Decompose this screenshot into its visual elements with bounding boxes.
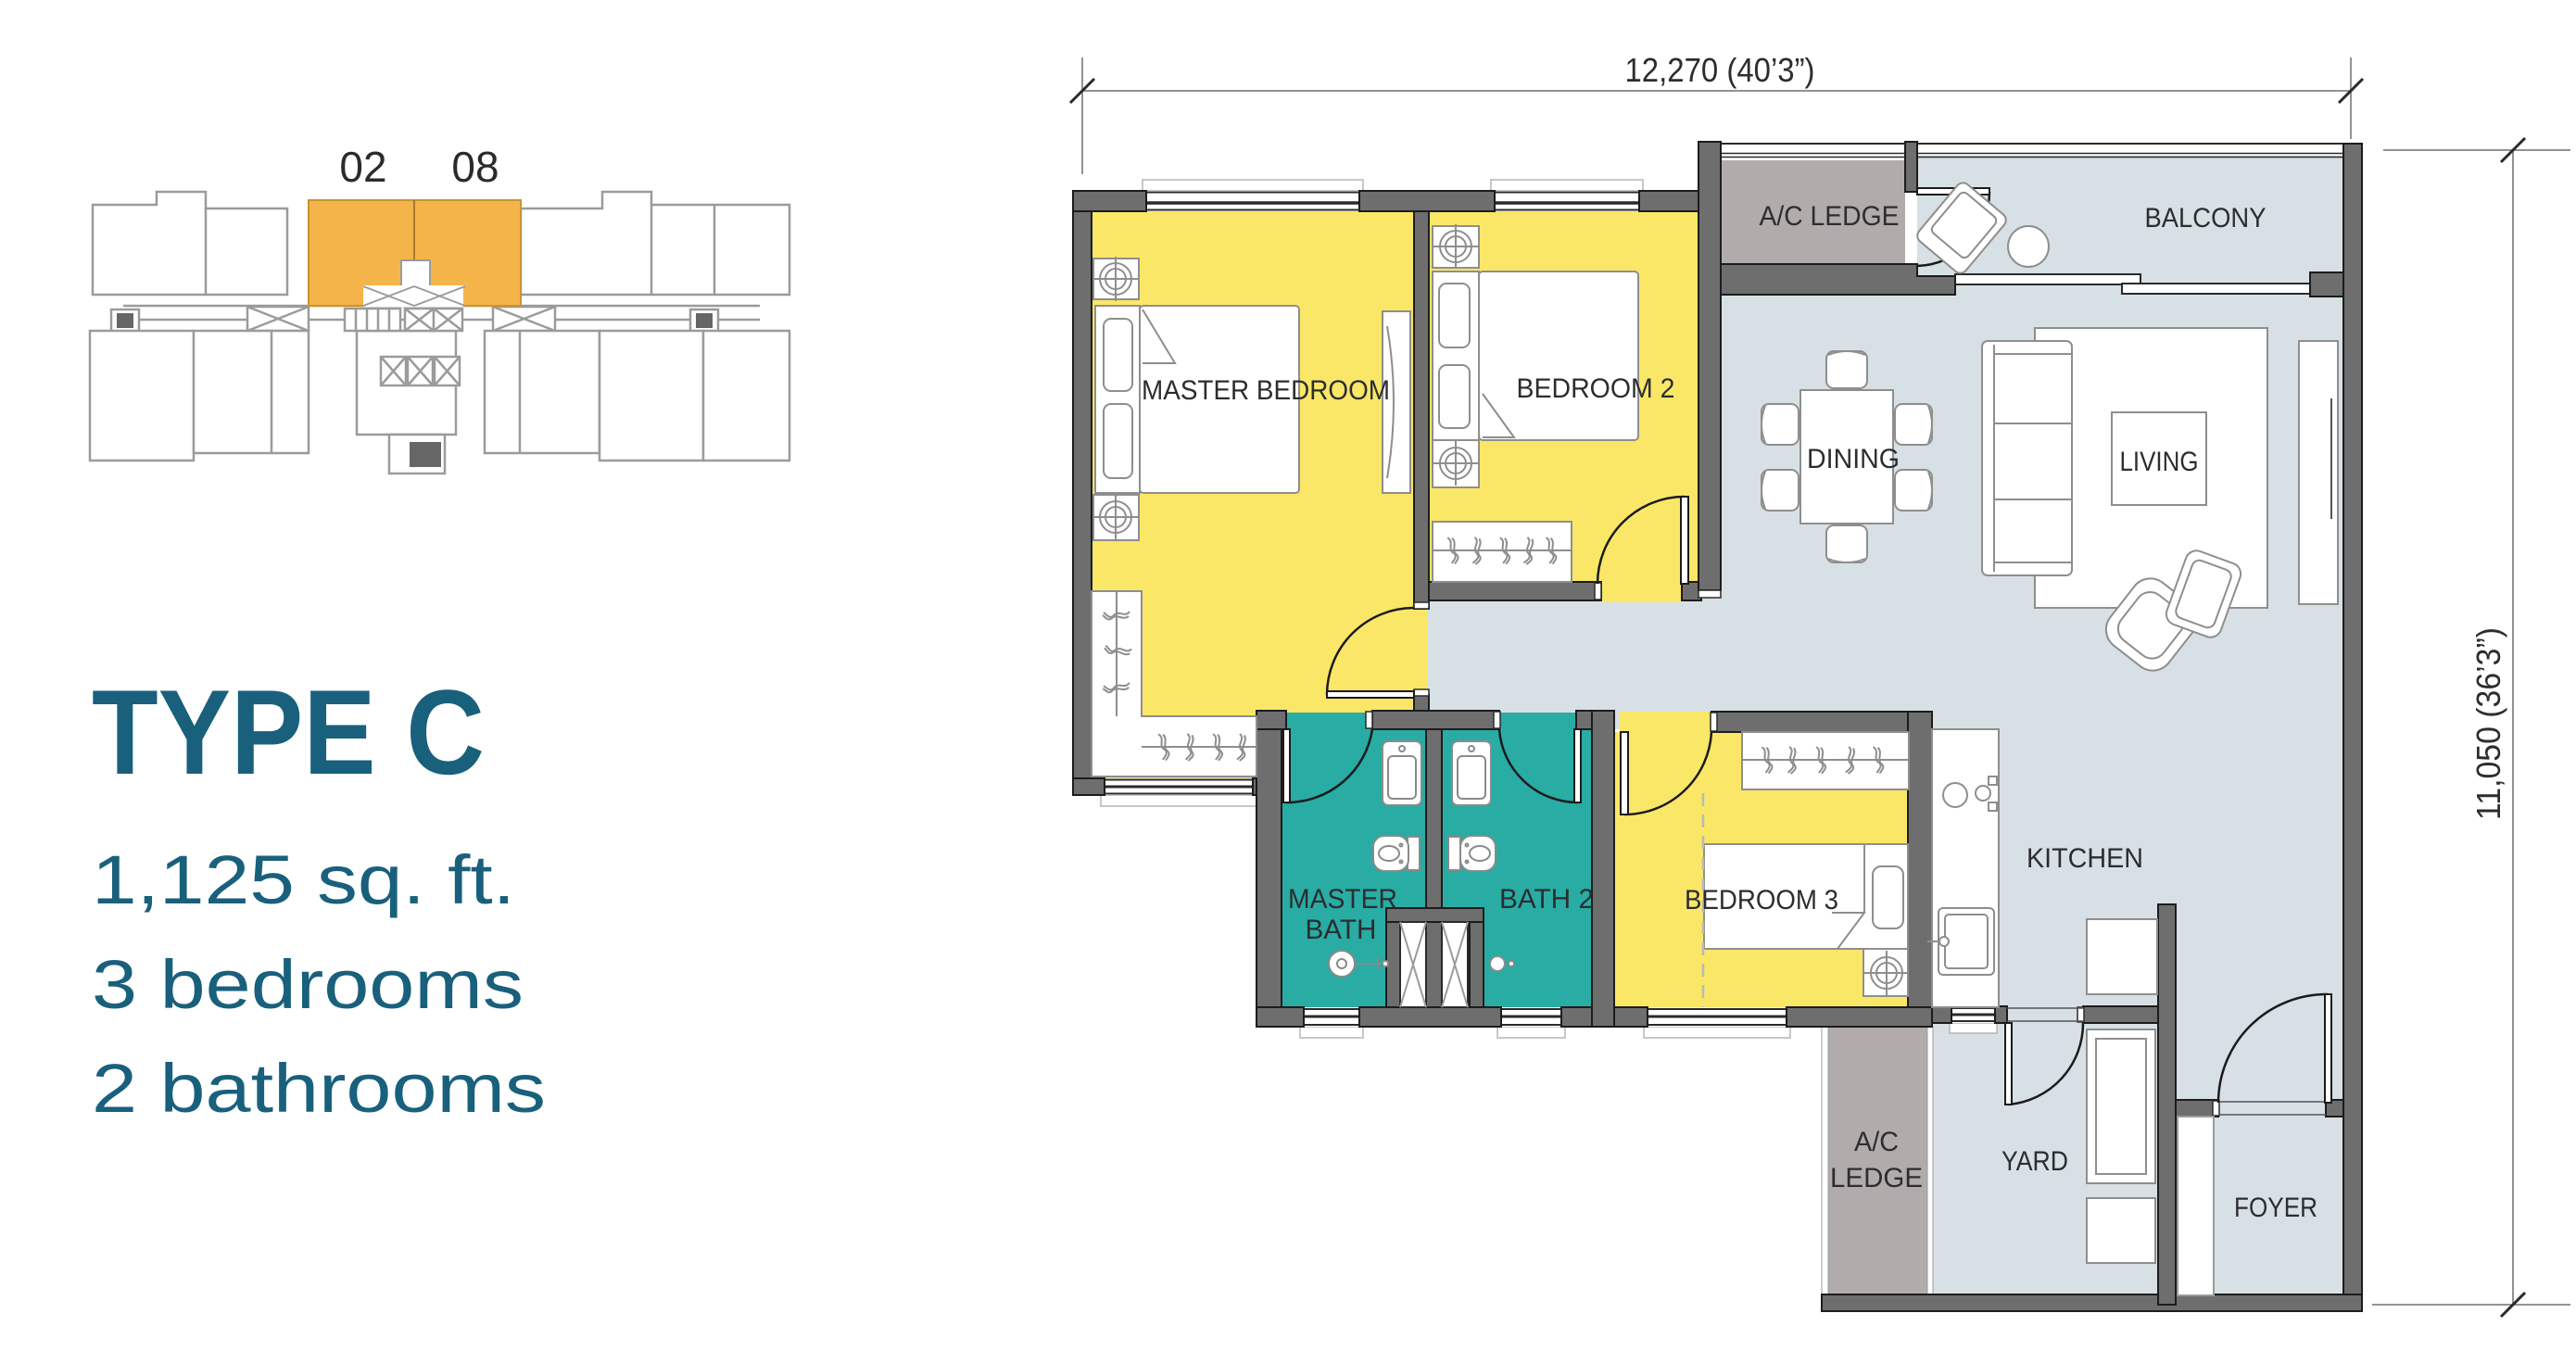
svg-text:FOYER: FOYER [2234,1193,2317,1223]
svg-text:DINING: DINING [1807,444,1900,474]
svg-text:12,270 (40’3”): 12,270 (40’3”) [1625,51,1815,89]
svg-text:2 bathrooms: 2 bathrooms [92,1050,546,1127]
svg-text:A/C: A/C [1854,1127,1899,1157]
svg-text:08: 08 [451,143,499,191]
svg-text:A/C LEDGE: A/C LEDGE [1760,201,1900,232]
svg-text:BATH 2: BATH 2 [1499,884,1594,915]
svg-text:BEDROOM 3: BEDROOM 3 [1685,885,1838,915]
svg-text:KITCHEN: KITCHEN [2027,843,2143,874]
svg-text:LEDGE: LEDGE [1830,1163,1923,1193]
svg-text:TYPE C: TYPE C [92,664,485,800]
svg-text:11,050 (36’3”): 11,050 (36’3”) [2469,627,2507,820]
svg-text:MASTER BEDROOM: MASTER BEDROOM [1142,375,1390,406]
svg-text:MASTER: MASTER [1288,884,1397,915]
svg-text:LIVING: LIVING [2120,447,2199,477]
svg-text:02: 02 [339,143,386,191]
svg-text:3 bedrooms: 3 bedrooms [92,946,524,1023]
svg-text:YARD: YARD [2001,1146,2068,1177]
svg-text:BATH: BATH [1306,915,1377,945]
svg-text:1,125 sq. ft.: 1,125 sq. ft. [92,841,515,918]
svg-text:BEDROOM 2: BEDROOM 2 [1517,373,1675,404]
svg-text:BALCONY: BALCONY [2145,203,2267,234]
